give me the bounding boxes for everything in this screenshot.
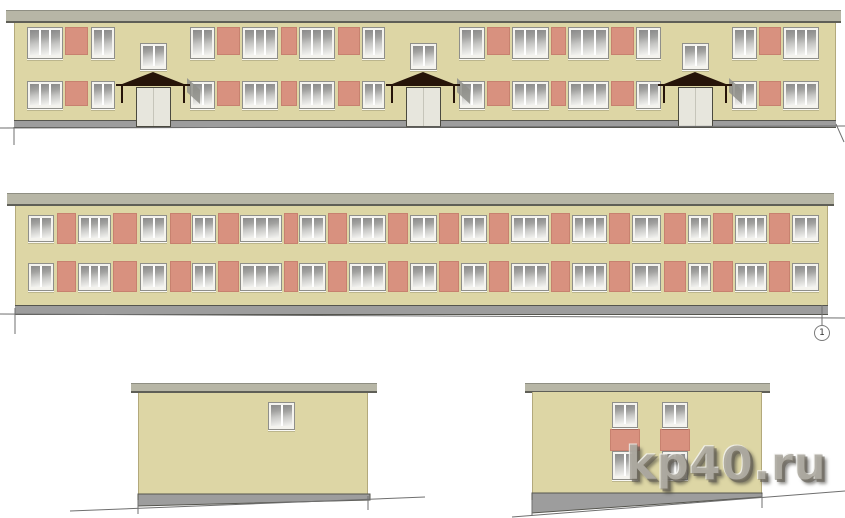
window-pane xyxy=(615,405,624,424)
window-pane xyxy=(615,454,624,476)
window xyxy=(662,402,688,428)
window-glass xyxy=(615,405,635,424)
axis-marker-label: 1 xyxy=(819,328,825,338)
watermark: kp40.ru xyxy=(626,437,826,491)
window-pane xyxy=(626,405,635,424)
window-glass xyxy=(665,405,685,424)
window xyxy=(612,402,638,428)
window-pane xyxy=(676,405,685,424)
axis-marker: 1 xyxy=(814,325,830,341)
window-pane xyxy=(665,405,674,424)
drawing-canvas: 1 kp40.ru xyxy=(0,0,845,518)
